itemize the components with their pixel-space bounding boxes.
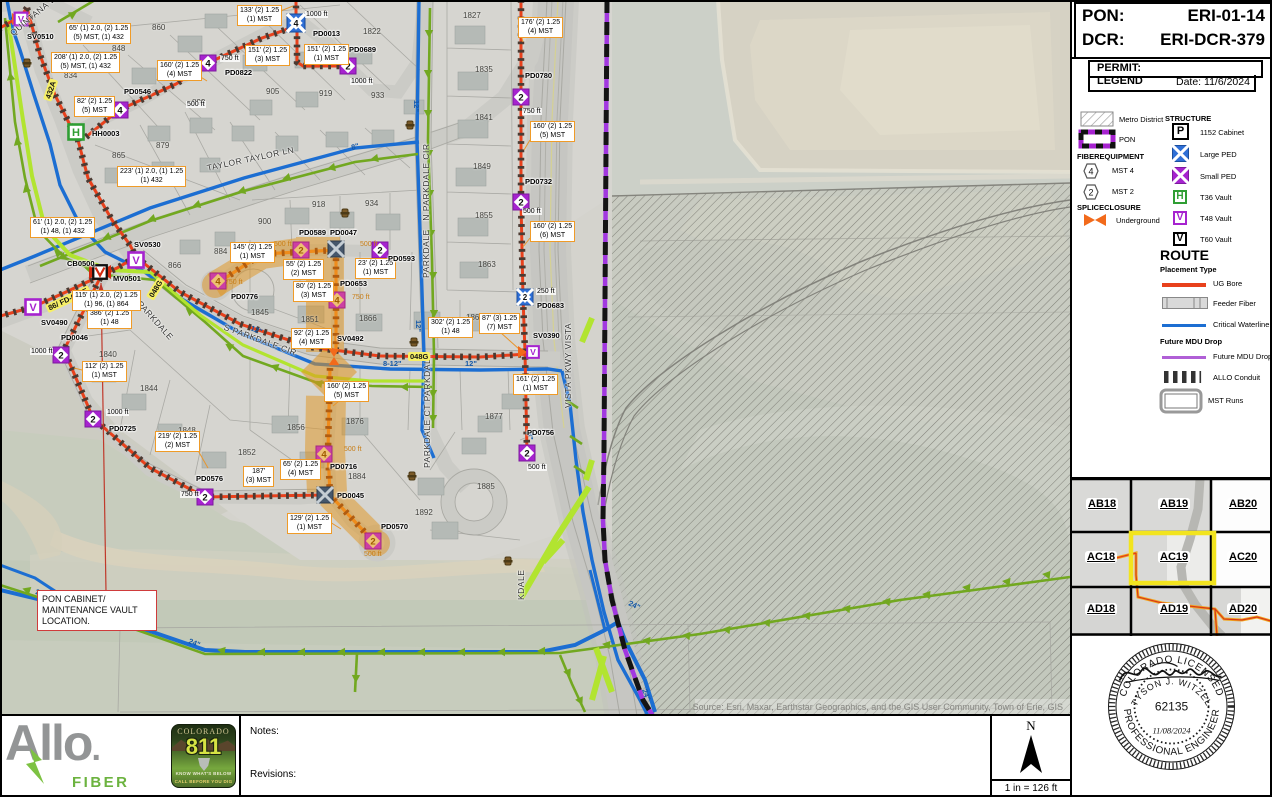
svg-text:2: 2 — [523, 293, 528, 302]
svg-text:12": 12" — [414, 320, 423, 332]
svg-text:11/08/2024: 11/08/2024 — [1152, 726, 1191, 736]
svg-text:4: 4 — [1088, 167, 1093, 177]
svg-text:4: 4 — [294, 18, 299, 28]
svg-text:12": 12" — [412, 100, 421, 112]
svg-text:12": 12" — [465, 359, 477, 368]
svg-text:2: 2 — [1088, 188, 1093, 198]
svg-text:62135: 62135 — [1155, 700, 1189, 714]
svg-text:Source: Esri, Maxar, Earthstar: Source: Esri, Maxar, Earthstar Geographi… — [693, 702, 1063, 712]
svg-text:8-12": 8-12" — [383, 359, 402, 368]
